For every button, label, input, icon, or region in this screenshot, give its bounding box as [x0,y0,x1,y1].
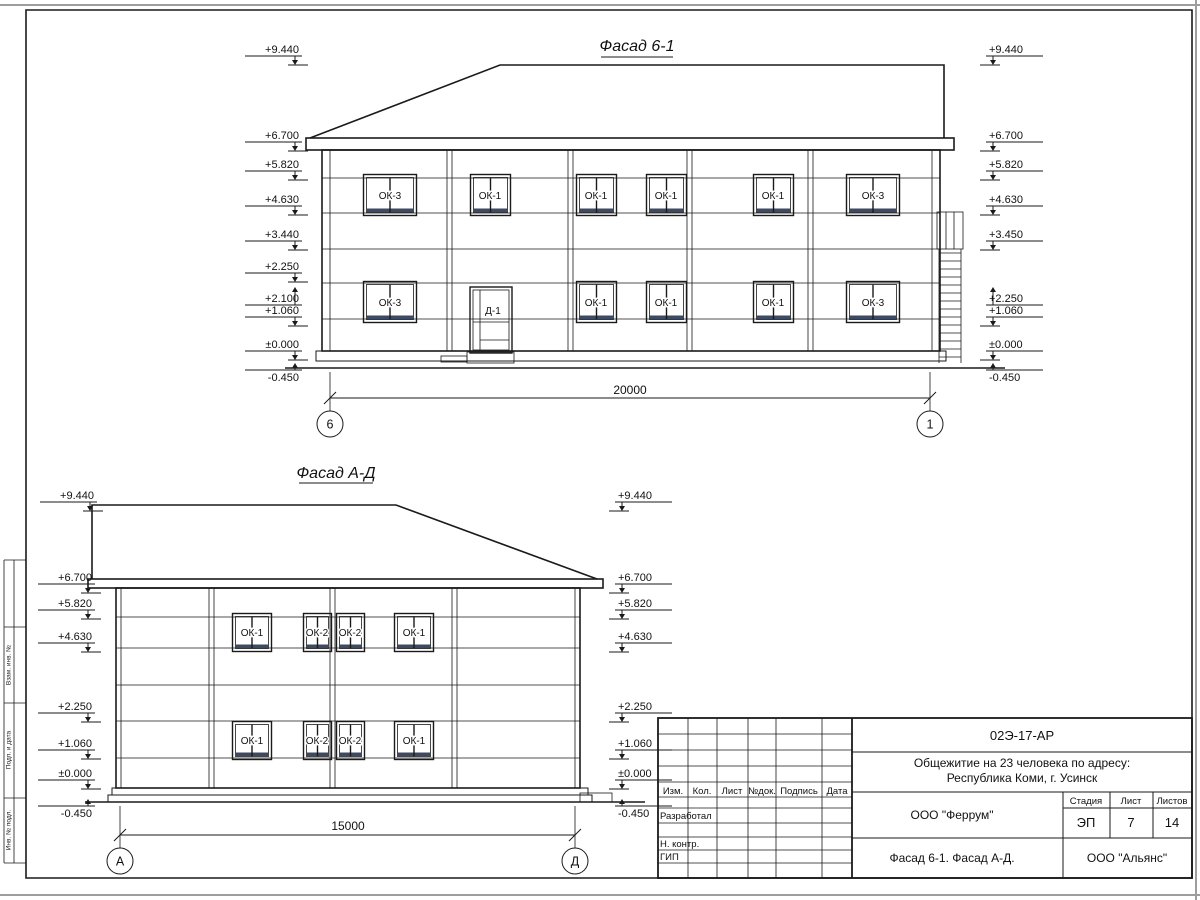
rev-col-doc: №док. [748,786,776,797]
svg-text:+6.700: +6.700 [58,572,92,584]
facade-6-1: Фасад 6-1 [245,38,1043,437]
project-name-line1: Общежитие на 23 человека по адресу: [914,756,1130,770]
window-label: ОК-1 [585,191,608,202]
svg-text:+2.100: +2.100 [265,293,299,305]
window-label: ОК-1 [762,298,785,309]
facade-drawing-canvas: Взам. инв. № Подп. и дата Инв. № подл. Ф… [0,0,1200,900]
svg-text:±0.000: ±0.000 [989,339,1023,351]
level-mark: +5.820 [980,159,1043,180]
level-mark: +9.440 [40,490,103,511]
sheets-label: Листов [1157,796,1188,807]
level-mark: +6.700 [245,130,308,151]
stage-value: ЭП [1077,815,1096,830]
svg-text:+4.630: +4.630 [618,631,652,643]
door-label: Д-1 [485,306,501,317]
level-mark: +2.100 [245,287,302,305]
window-label: ОК-3 [379,298,402,309]
side-label-vzam: Взам. инв. № [6,645,13,685]
level-mark: +2.250 [986,287,1043,305]
level-mark: +4.630 [38,631,101,652]
svg-text:+1.060: +1.060 [58,738,92,750]
row-ncontrol: Н. контр. [660,839,699,850]
svg-text:+6.700: +6.700 [618,572,652,584]
level-mark: +6.700 [609,572,672,593]
level-mark: +3.440 [245,229,308,250]
window-label: ОК-2 [339,628,362,639]
facade1-dimension: 20000 6 1 [317,372,943,437]
facade1-title: Фасад 6-1 [600,38,675,55]
facade1-levels-left: +9.440 +6.700 +5.820 +4.630 +3.440 +2.25… [245,44,308,384]
svg-text:+6.700: +6.700 [265,130,299,142]
facade2-windows-lower: ОК-1 ОК-2 ОК-2 ОК-1 [233,722,434,760]
svg-text:+1.060: +1.060 [989,305,1023,317]
svg-text:-0.450: -0.450 [618,808,649,820]
org-name: ООО "Феррум" [911,808,994,822]
level-mark: +3.450 [980,229,1043,250]
stage-label: Стадия [1070,796,1102,807]
svg-text:-0.450: -0.450 [61,808,92,820]
dimension-value: 15000 [331,819,365,833]
window-label: ОК-3 [862,191,885,202]
svg-text:±0.000: ±0.000 [618,768,652,780]
axis-label: 1 [927,418,934,432]
svg-text:+2.250: +2.250 [989,293,1023,305]
svg-text:+5.820: +5.820 [58,598,92,610]
facade1-levels-right: +9.440 +6.700 +5.820 +4.630 +3.450 +2.25… [980,44,1043,384]
side-label-podp: Подп. и дата [6,730,13,769]
facade2-roof [88,505,603,588]
svg-text:+3.440: +3.440 [265,229,299,241]
svg-text:±0.000: ±0.000 [58,768,92,780]
facade2-dimension: 15000 А Д [107,806,588,874]
svg-text:±0.000: ±0.000 [265,339,299,351]
window-label: ОК-1 [655,191,678,202]
level-mark: +2.250 [245,261,308,282]
rev-col-list: Лист [722,786,743,797]
sheets-total: 14 [1165,815,1179,830]
entrance-door: Д-1 [470,287,512,353]
drawing-title: Фасад 6-1. Фасад А-Д. [889,851,1014,865]
svg-text:+6.700: +6.700 [989,130,1023,142]
level-mark: +5.820 [38,598,101,619]
svg-text:-0.450: -0.450 [268,372,299,384]
window-label: ОК-3 [862,298,885,309]
facade1-plinth [285,351,1005,368]
level-mark: +5.820 [609,598,672,619]
project-name-line2: Республика Коми, г. Усинск [947,771,1098,785]
level-mark: +1.060 [609,738,672,759]
org2-name: ООО "Альянс" [1087,851,1167,865]
svg-text:+2.250: +2.250 [265,261,299,273]
facade-a-d: Фасад А-Д ОК-1 ОК-2 ОК-2 ОК-1 [38,465,672,874]
window-label: ОК-3 [379,191,402,202]
level-mark: +1.060 [38,738,101,759]
window-label: ОК-1 [241,736,264,747]
window-label: ОК-1 [762,191,785,202]
sheet-number: 7 [1127,815,1134,830]
svg-text:+1.060: +1.060 [618,738,652,750]
svg-text:+9.440: +9.440 [989,44,1023,56]
svg-text:+5.820: +5.820 [618,598,652,610]
left-stamp-boxes: Взам. инв. № Подп. и дата Инв. № подл. [4,560,26,863]
level-mark: +9.440 [980,44,1043,65]
row-developed: Разработал [660,811,712,822]
svg-text:+9.440: +9.440 [265,44,299,56]
svg-text:+2.250: +2.250 [618,701,652,713]
facade1-roof [306,65,954,150]
level-mark: -0.450 [38,799,95,820]
level-mark: +4.630 [609,631,672,652]
svg-text:+5.820: +5.820 [989,159,1023,171]
facade2-plinth [85,788,645,802]
level-mark: +5.820 [245,159,308,180]
level-mark: +6.700 [980,130,1043,151]
level-mark: +6.700 [38,572,101,593]
rev-col-data: Дата [826,786,848,797]
row-gip: ГИП [660,852,679,863]
svg-text:+9.440: +9.440 [618,490,652,502]
doc-number: 02Э-17-АР [990,728,1054,743]
svg-text:-0.450: -0.450 [989,372,1020,384]
window-label: ОК-1 [479,191,502,202]
level-mark: +4.630 [245,194,308,215]
drawing-sheet: Взам. инв. № Подп. и дата Инв. № подл. Ф… [0,0,1200,900]
title-block: Изм. Кол. Лист №док. Подпись Дата Разраб… [658,718,1192,878]
facade2-windows-upper: ОК-1 ОК-2 ОК-2 ОК-1 [233,614,434,652]
facade2-levels-left: +9.440 +6.700 +5.820 +4.630 +2.250 +1.06… [38,490,103,820]
facade1-windows-upper: ОК-3 ОК-1 ОК-1 ОК-1 ОК-1 ОК-3 [364,175,900,216]
facade1-windows-lower: ОК-3 ОК-1 ОК-1 ОК-1 ОК-3 Д-1 [364,282,900,354]
level-mark: +9.440 [609,490,672,511]
axis-label: Д [571,855,580,869]
svg-text:+2.250: +2.250 [58,701,92,713]
window-label: ОК-2 [306,736,329,747]
svg-text:+3.450: +3.450 [989,229,1023,241]
svg-text:+9.440: +9.440 [60,490,94,502]
window-label: ОК-2 [339,736,362,747]
level-mark: ±0.000 [980,339,1043,360]
window-label: ОК-1 [241,628,264,639]
svg-text:+5.820: +5.820 [265,159,299,171]
svg-text:+4.630: +4.630 [989,194,1023,206]
dimension-value: 20000 [613,383,647,397]
facade1-wall [322,150,940,351]
facade2-wall [116,588,580,788]
side-label-inv: Инв. № подл. [6,810,13,851]
window-label: ОК-1 [585,298,608,309]
window-label: ОК-1 [403,736,426,747]
svg-text:+4.630: +4.630 [58,631,92,643]
level-mark: +4.630 [980,194,1043,215]
window-label: ОК-1 [655,298,678,309]
level-mark: ±0.000 [38,768,101,789]
fire-ladder [937,212,963,363]
level-mark: +2.250 [38,701,101,722]
axis-label: А [116,855,125,869]
level-mark: -0.450 [245,363,302,384]
svg-text:+4.630: +4.630 [265,194,299,206]
level-mark: +1.060 [245,305,308,326]
rev-col-izm: Изм. [663,786,683,797]
rev-col-podpis: Подпись [780,786,818,797]
window-label: ОК-2 [306,628,329,639]
rev-col-kol: Кол. [693,786,712,797]
level-mark: +1.060 [980,305,1043,326]
level-mark: ±0.000 [245,339,308,360]
axis-label: 6 [327,418,334,432]
sheet-label: Лист [1121,796,1142,807]
level-mark: +9.440 [245,44,308,65]
window-label: ОК-1 [403,628,426,639]
svg-text:+1.060: +1.060 [265,305,299,317]
facade2-levels-right: +9.440 +6.700 +5.820 +4.630 +2.250 +1.06… [609,490,672,820]
facade2-title: Фасад А-Д [296,465,375,482]
level-mark: -0.450 [986,363,1043,384]
